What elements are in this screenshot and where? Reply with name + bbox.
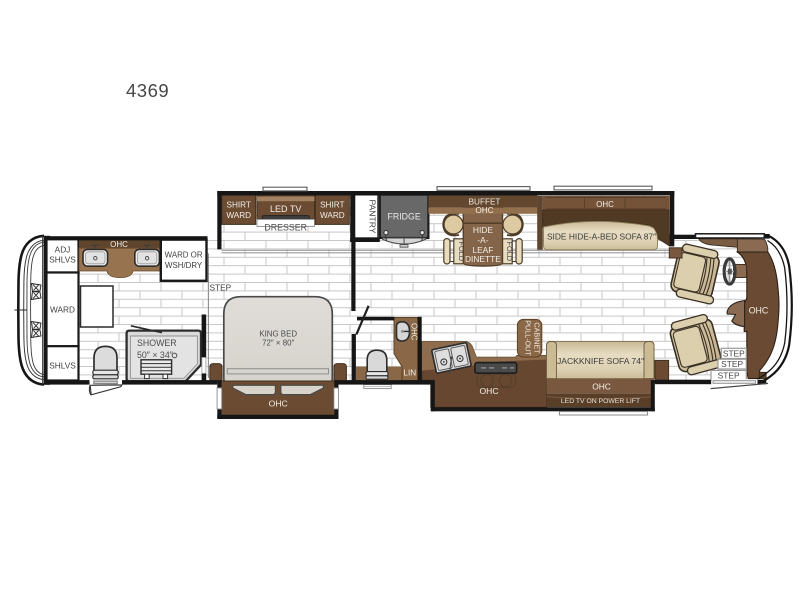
svg-text:JACKKNIFE SOFA 74″: JACKKNIFE SOFA 74″ bbox=[557, 356, 644, 366]
svg-text:STEP: STEP bbox=[723, 348, 745, 358]
svg-text:WARD: WARD bbox=[226, 211, 251, 220]
svg-text:OHC: OHC bbox=[410, 323, 419, 341]
svg-text:DRESSER: DRESSER bbox=[264, 223, 307, 233]
svg-text:CABINET: CABINET bbox=[532, 322, 541, 354]
svg-text:LED TV: LED TV bbox=[270, 204, 301, 214]
svg-text:OHC: OHC bbox=[596, 200, 614, 209]
svg-text:50″ × 34″: 50″ × 34″ bbox=[137, 350, 173, 360]
svg-text:LIN: LIN bbox=[403, 368, 416, 377]
svg-text:OHC: OHC bbox=[475, 206, 493, 215]
svg-text:4369: 4369 bbox=[126, 80, 169, 101]
svg-text:SHIRT: SHIRT bbox=[320, 201, 344, 210]
svg-text:HIDE: HIDE bbox=[473, 225, 493, 235]
svg-text:OHC: OHC bbox=[592, 381, 611, 391]
svg-text:72″ × 80″: 72″ × 80″ bbox=[262, 338, 294, 347]
svg-text:PULL-OUT: PULL-OUT bbox=[524, 320, 533, 356]
svg-text:KING BED: KING BED bbox=[259, 330, 297, 339]
svg-text:WARD: WARD bbox=[50, 305, 75, 315]
svg-text:OHC: OHC bbox=[110, 240, 128, 249]
svg-text:SHLVS: SHLVS bbox=[49, 255, 76, 265]
svg-text:LED TV ON POWER LIFT: LED TV ON POWER LIFT bbox=[561, 398, 640, 405]
svg-text:STEP: STEP bbox=[210, 282, 232, 292]
svg-text:SHOWER: SHOWER bbox=[137, 338, 177, 348]
svg-text:SHIRT: SHIRT bbox=[226, 201, 250, 210]
svg-text:WARD OR: WARD OR bbox=[165, 251, 203, 260]
svg-text:-A-: -A- bbox=[477, 235, 488, 245]
svg-text:FRIDGE: FRIDGE bbox=[387, 212, 420, 222]
svg-text:STEP: STEP bbox=[721, 359, 743, 369]
svg-text:WARD: WARD bbox=[320, 211, 345, 220]
svg-text:SIDE HIDE-A-BED SOFA 87″: SIDE HIDE-A-BED SOFA 87″ bbox=[547, 231, 656, 241]
svg-text:PANTRY: PANTRY bbox=[368, 199, 378, 233]
svg-text:DINETTE: DINETTE bbox=[465, 254, 501, 264]
svg-text:OHC: OHC bbox=[749, 305, 769, 315]
svg-text:SHLVS: SHLVS bbox=[49, 360, 76, 370]
svg-text:ADJ: ADJ bbox=[55, 245, 71, 255]
svg-text:WSH/DRY: WSH/DRY bbox=[165, 261, 203, 270]
svg-text:FOLD: FOLD bbox=[505, 241, 514, 261]
svg-text:STEP: STEP bbox=[718, 371, 740, 381]
svg-text:OHC: OHC bbox=[269, 399, 288, 409]
